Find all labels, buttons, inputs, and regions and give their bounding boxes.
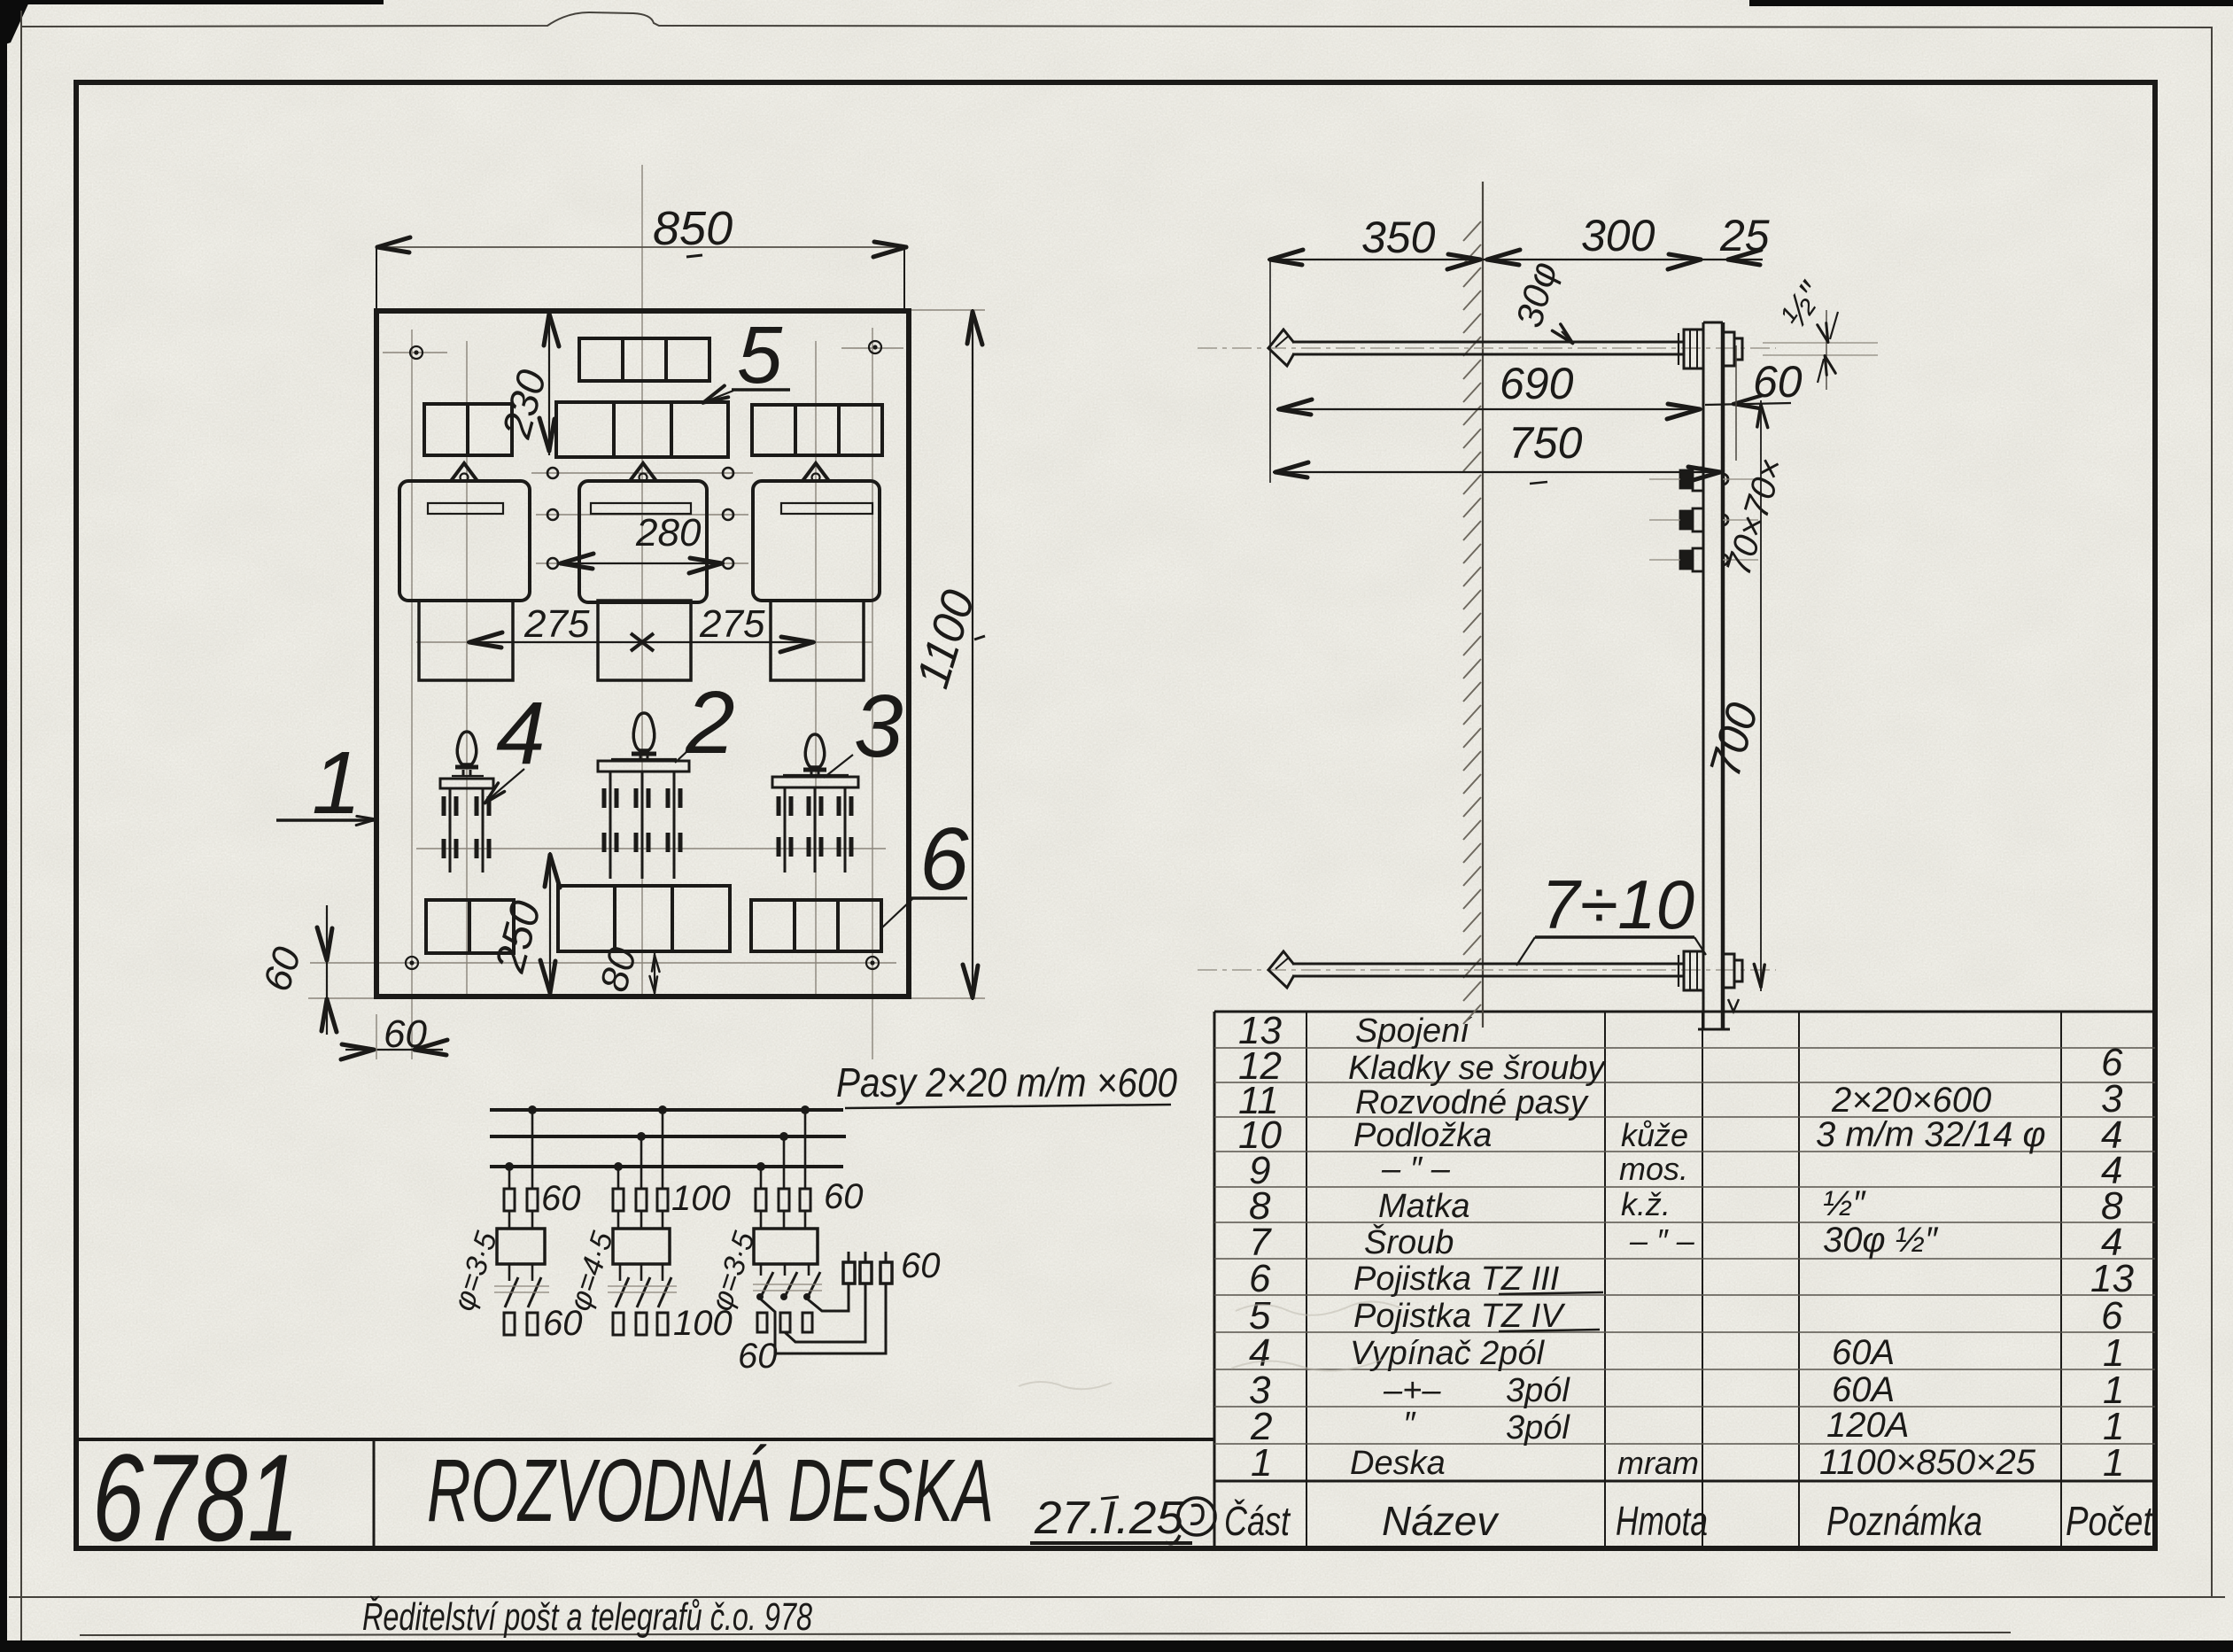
svg-text:–+–: –+– — [1383, 1372, 1441, 1409]
svg-text:Spojení: Spojení — [1355, 1012, 1472, 1050]
svg-text:Počet: Počet — [2066, 1498, 2154, 1544]
svg-text:Vypínač 2pól: Vypínač 2pól — [1350, 1335, 1546, 1372]
svg-text:Podložka: Podložka — [1353, 1117, 1492, 1154]
svg-text:Hmota: Hmota — [1616, 1498, 1708, 1544]
svg-text:275: 275 — [699, 602, 765, 646]
svg-text:″: ″ — [1403, 1406, 1416, 1443]
svg-text:5: 5 — [737, 310, 783, 400]
svg-text:Pojistka TZ III: Pojistka TZ III — [1353, 1260, 1560, 1298]
svg-text:Poznámka: Poznámka — [1826, 1498, 1982, 1544]
svg-text:6781: 6781 — [92, 1428, 299, 1567]
svg-text:300: 300 — [1581, 211, 1655, 260]
svg-text:mos.: mos. — [1619, 1151, 1688, 1187]
svg-text:690: 690 — [1500, 359, 1574, 408]
svg-text:Ředitelství pošt a telegrafů: Ředitelství pošt a telegrafů č.o. 978 — [362, 1595, 812, 1639]
svg-text:½″: ½″ — [1823, 1184, 1866, 1223]
svg-text:750: 750 — [1508, 418, 1583, 468]
svg-text:60: 60 — [384, 1012, 427, 1056]
svg-text:280: 280 — [635, 511, 702, 555]
svg-text:120A: 120A — [1826, 1406, 1909, 1445]
svg-text:mram: mram — [1617, 1445, 1699, 1481]
svg-text:1100×850×25: 1100×850×25 — [1819, 1443, 2036, 1482]
svg-text:60: 60 — [824, 1177, 864, 1216]
svg-text:30φ ½″: 30φ ½″ — [1823, 1221, 1939, 1260]
svg-text:2: 2 — [685, 673, 735, 772]
svg-text:ROZVODNÁ DESKA: ROZVODNÁ DESKA — [427, 1441, 994, 1540]
svg-text:7÷10: 7÷10 — [1541, 865, 1694, 943]
svg-text:Název: Název — [1382, 1498, 1500, 1544]
svg-text:60: 60 — [738, 1337, 778, 1376]
svg-text:kůže: kůže — [1621, 1117, 1688, 1153]
svg-text:60A: 60A — [1832, 1370, 1895, 1409]
svg-text:3 m/m 32/14 φ: 3 m/m 32/14 φ — [1816, 1115, 2046, 1154]
svg-text:– ″ –: – ″ – — [1629, 1222, 1695, 1259]
svg-text:1: 1 — [2103, 1441, 2124, 1485]
svg-text:275: 275 — [523, 602, 590, 646]
svg-text:Matka: Matka — [1378, 1188, 1469, 1225]
svg-text:27.I.25: 27.I.25 — [1034, 1493, 1184, 1544]
svg-text:60A: 60A — [1832, 1333, 1895, 1372]
svg-text:3pól: 3pól — [1506, 1409, 1570, 1446]
svg-text:6: 6 — [919, 810, 969, 909]
svg-text:1: 1 — [1251, 1441, 1272, 1485]
svg-text:60: 60 — [901, 1246, 941, 1285]
svg-text:60: 60 — [1753, 357, 1803, 407]
svg-text:Kladky se šrouby: Kladky se šrouby — [1348, 1050, 1606, 1087]
svg-text:350: 350 — [1361, 213, 1436, 262]
svg-text:850: 850 — [653, 202, 733, 255]
svg-text:Část: Část — [1224, 1498, 1291, 1544]
svg-text:100: 100 — [671, 1179, 731, 1218]
svg-text:Rozvodné pasy: Rozvodné pasy — [1355, 1084, 1589, 1121]
svg-text:Deska: Deska — [1350, 1445, 1446, 1482]
svg-text:2×20×600: 2×20×600 — [1831, 1081, 1991, 1120]
svg-text:3: 3 — [854, 677, 903, 776]
svg-text:Pasy 2×20 m/m ×600: Pasy 2×20 m/m ×600 — [836, 1059, 1177, 1105]
svg-text:1: 1 — [312, 733, 361, 833]
svg-text:3pól: 3pól — [1506, 1372, 1570, 1409]
svg-text:Šroub: Šroub — [1364, 1222, 1454, 1261]
svg-text:60: 60 — [541, 1179, 581, 1218]
svg-text:– ″ –: – ″ – — [1381, 1151, 1451, 1188]
svg-text:k.ž.: k.ž. — [1621, 1186, 1671, 1222]
svg-text:4: 4 — [496, 684, 546, 783]
